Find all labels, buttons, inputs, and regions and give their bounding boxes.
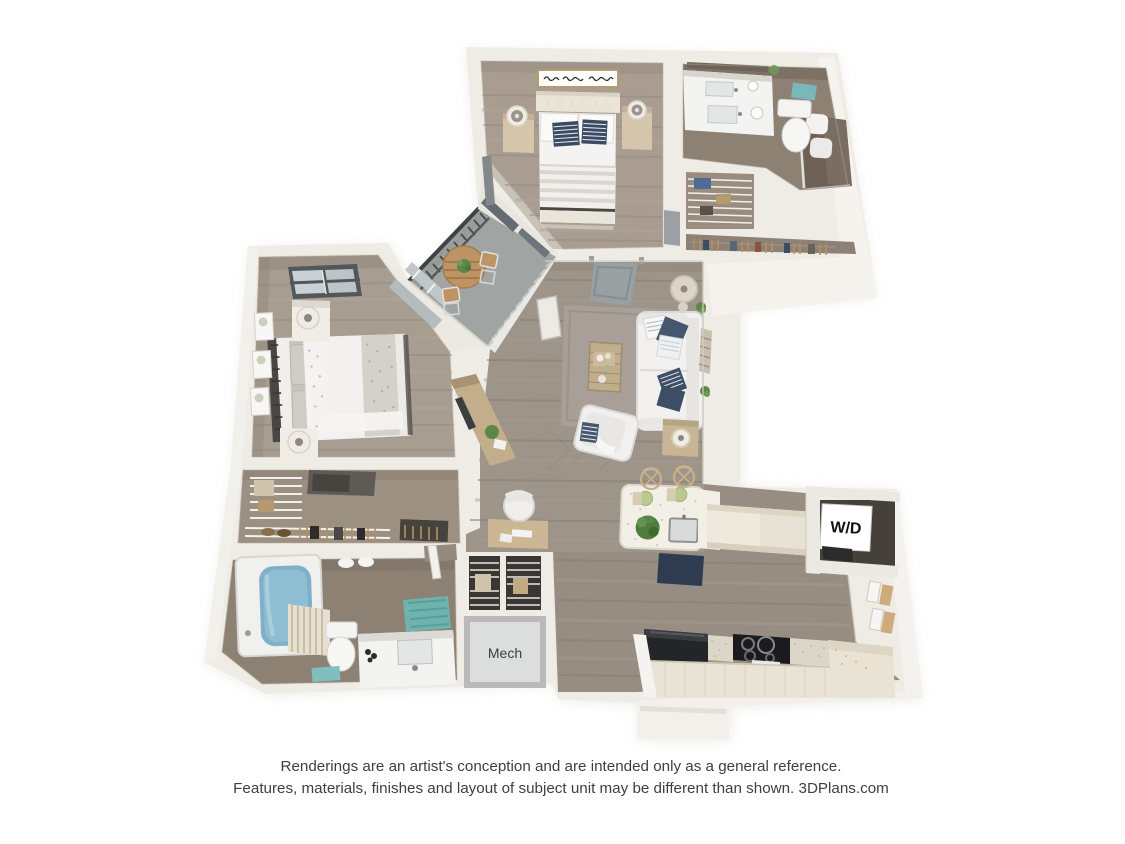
svg-text:Mech: Mech [488,645,522,661]
svg-text:W/D: W/D [830,519,862,538]
svg-text:Features, materials, finishes: Features, materials, finishes and layout… [233,780,889,797]
svg-text:Renderings are an artist's con: Renderings are an artist's conception an… [281,758,842,775]
